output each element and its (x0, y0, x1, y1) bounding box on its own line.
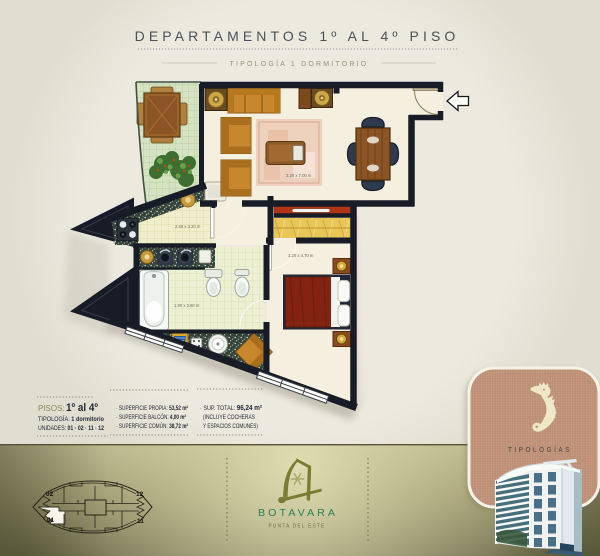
svg-text:· SUPERFICIE COMÚN: 38,72 m²: · SUPERFICIE COMÚN: 38,72 m² (116, 423, 188, 430)
svg-text:TIPOLOGÍAS: TIPOLOGÍAS (508, 445, 572, 454)
svg-text:01: 01 (47, 517, 55, 524)
svg-text:11: 11 (137, 518, 144, 525)
svg-text:· SUPERFICIE PROPIA: 53,52 m²: · SUPERFICIE PROPIA: 53,52 m² (116, 405, 188, 412)
svg-text:12: 12 (136, 491, 144, 498)
svg-text:PUNTA DEL ESTE: PUNTA DEL ESTE (269, 524, 326, 530)
svg-text:· SUP. TOTAL: 96,24 m²: · SUP. TOTAL: 96,24 m² (200, 403, 263, 412)
svg-text:3.20 x 7.00 m: 3.20 x 7.00 m (286, 173, 312, 178)
svg-text:02: 02 (46, 491, 54, 498)
svg-text:1º al 4º: 1º al 4º (66, 402, 98, 414)
svg-text:TIPOLOGÍA 1 DORMITORIO: TIPOLOGÍA 1 DORMITORIO (230, 59, 369, 68)
svg-text:TIPOLOGÍA: 1 dormitorio: TIPOLOGÍA: 1 dormitorio (38, 416, 104, 423)
svg-text:(INCLUYE COCHERAS: (INCLUYE COCHERAS (203, 414, 255, 421)
svg-text:· SUPERFICIE BALCÓN: 4,00 m²: · SUPERFICIE BALCÓN: 4,00 m² (116, 414, 186, 421)
svg-text:UNIDADES: 01 · 02 · 11 · 12: UNIDADES: 01 · 02 · 11 · 12 (38, 425, 104, 432)
svg-text:1.90 x 2.60 m: 1.90 x 2.60 m (174, 303, 200, 308)
svg-text:DEPARTAMENTOS 1º AL 4º PISO: DEPARTAMENTOS 1º AL 4º PISO (135, 28, 460, 44)
svg-text:BOTAVARA: BOTAVARA (258, 508, 338, 519)
svg-text:3.20 x 4.70 m: 3.20 x 4.70 m (288, 253, 314, 258)
svg-text:Y ESPACIOS COMUNES): Y ESPACIOS COMUNES) (203, 423, 258, 430)
svg-text:PISOS:: PISOS: (38, 404, 65, 413)
svg-text:2.50 x 3.20 m: 2.50 x 3.20 m (175, 224, 201, 229)
